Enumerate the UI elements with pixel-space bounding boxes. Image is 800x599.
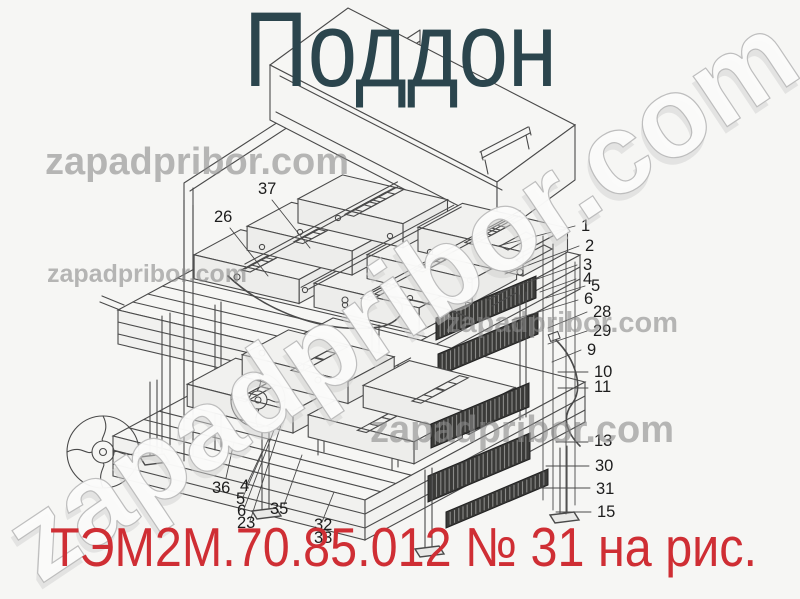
svg-text:zapadpribor.com: zapadpribor.com [446, 307, 678, 339]
svg-text:ТЭМ2М.70.85.012 № 31 на рис.: ТЭМ2М.70.85.012 № 31 на рис. [50, 516, 757, 578]
svg-text:6: 6 [584, 290, 593, 308]
svg-text:zapadpribor.com: zapadpribor.com [45, 141, 349, 183]
svg-text:zapadpribor.com: zapadpribor.com [370, 409, 674, 451]
svg-text:26: 26 [214, 208, 232, 226]
svg-text:31: 31 [596, 480, 614, 498]
svg-text:9: 9 [587, 341, 596, 359]
svg-text:30: 30 [595, 457, 613, 475]
svg-text:zapadpribor.com: zapadpribor.com [47, 260, 247, 288]
svg-text:Поддон: Поддон [244, 0, 557, 109]
svg-text:11: 11 [594, 378, 611, 396]
